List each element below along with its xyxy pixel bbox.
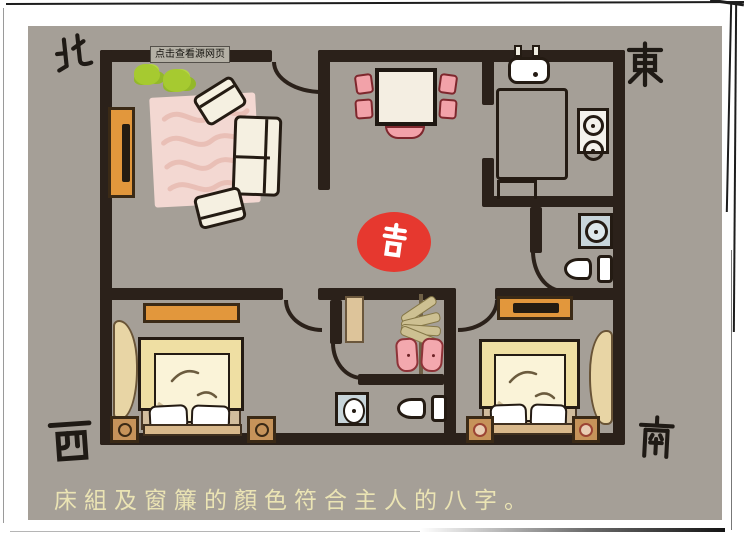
ji-glyph (370, 217, 418, 266)
wall-bedroom-west-top (100, 288, 283, 300)
toilet-tank (431, 395, 447, 422)
headboard (484, 423, 578, 435)
dining-table (375, 68, 437, 126)
armchair-backrest (201, 207, 242, 220)
wash-basin (335, 392, 369, 426)
drain-icon (533, 72, 538, 77)
tv-dresser (497, 296, 573, 320)
frame-line-right-b (733, 2, 737, 332)
sofa-seat-divider (236, 155, 270, 159)
nightstand (466, 416, 494, 443)
faucet-icon (514, 45, 522, 57)
wall-bathroom-east-stub (530, 207, 542, 253)
basin-bowl (343, 398, 365, 424)
kitchen-small-table (497, 180, 537, 199)
dining-chair (438, 73, 459, 95)
faucet-icon (532, 45, 540, 57)
dining-chair (438, 98, 457, 119)
hanging-coat (395, 337, 419, 372)
toilet-bowl (397, 398, 426, 419)
wall-top-right (318, 50, 625, 62)
plant-icon (163, 69, 191, 92)
auspicious-badge (357, 212, 431, 272)
toilet (397, 395, 447, 422)
south-glyph (630, 403, 682, 475)
flower-decor-icon (473, 423, 487, 437)
frame-line-left (3, 8, 4, 523)
clothes-rack (393, 294, 449, 378)
tv-icon (122, 124, 130, 182)
wall-east (613, 50, 625, 445)
burner-icon (583, 140, 604, 161)
nightstand (572, 416, 600, 443)
frame-line-right-a (726, 2, 732, 212)
burner-icon (583, 115, 604, 136)
feng-shui-floor-plan: 点击查看源网页 床組及窗簾的顏色符合主人的八字。 (0, 0, 750, 537)
compass-south (630, 403, 682, 480)
north-glyph (49, 28, 100, 83)
dresser (143, 303, 240, 323)
compass-north (49, 28, 100, 88)
west-glyph (42, 412, 100, 472)
toilet-bowl (564, 258, 592, 280)
dining-chair (354, 73, 375, 95)
nightstand (110, 416, 139, 443)
kitchen-counter (496, 88, 568, 180)
wall-closet-left (330, 300, 342, 344)
compass-west (42, 412, 100, 477)
toilet (564, 255, 613, 283)
frame-line-right-c (731, 250, 732, 530)
washing-machine (578, 213, 613, 249)
frame-line-bottom-left (10, 531, 420, 532)
curtain (589, 330, 613, 425)
washer-drum-icon (585, 220, 608, 243)
hanging-coat (420, 337, 444, 372)
stove (577, 108, 609, 154)
sofa (232, 115, 283, 197)
dining-chair (354, 98, 373, 119)
wall-kitchen-left-upper (482, 50, 494, 105)
caption-text: 床組及窗簾的顏色符合主人的八字。 (54, 481, 534, 515)
nightstand-decor-icon (118, 423, 132, 437)
nightstand (247, 416, 276, 443)
compass-east (620, 36, 670, 99)
kitchen-sink (508, 57, 550, 84)
flower-decor-icon (579, 423, 593, 437)
frame-line-top (6, 1, 744, 5)
source-link[interactable]: 点击查看源网页 (150, 46, 230, 63)
tv-icon (513, 303, 559, 313)
headboard (143, 424, 242, 436)
east-glyph (620, 36, 670, 94)
frame-line-bottom (420, 528, 725, 532)
nightstand-decor-icon (255, 423, 269, 437)
toilet-tank (597, 255, 613, 283)
closet-door-panel (345, 296, 364, 343)
tv-cabinet (108, 107, 135, 198)
plant-icon (134, 64, 160, 85)
